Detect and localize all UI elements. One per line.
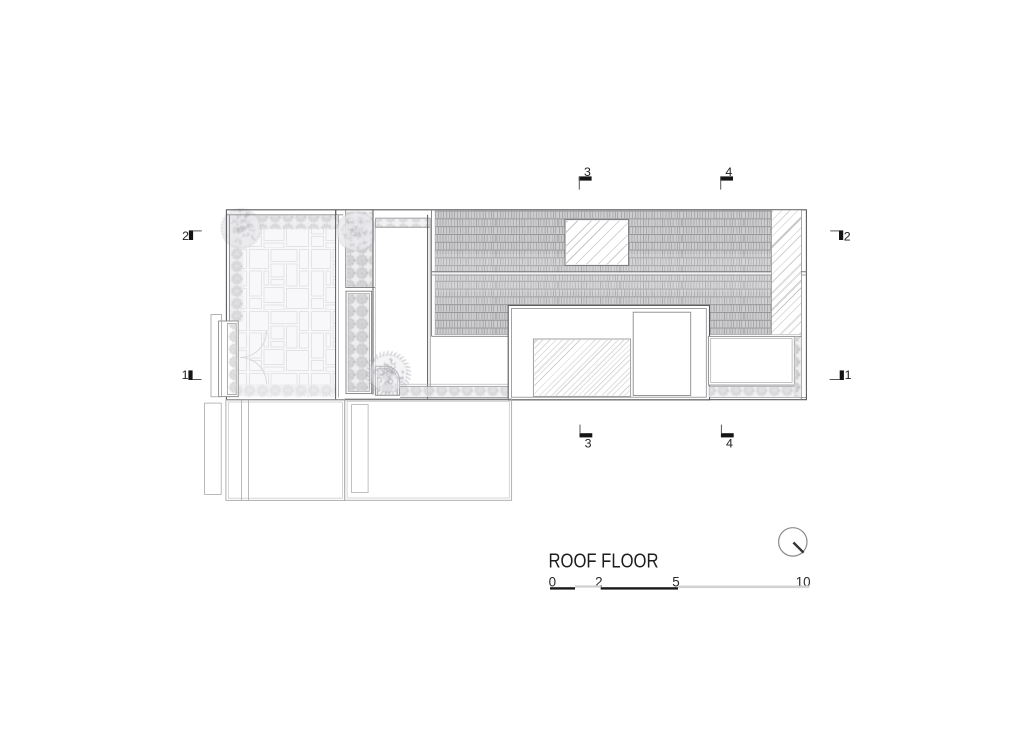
svg-text:4: 4 — [725, 165, 732, 179]
svg-text:2: 2 — [844, 229, 851, 243]
svg-text:3: 3 — [584, 165, 591, 179]
svg-text:ROOF FLOOR: ROOF FLOOR — [549, 550, 659, 573]
svg-text:0: 0 — [549, 574, 556, 589]
svg-text:4: 4 — [726, 436, 733, 450]
svg-text:1: 1 — [182, 368, 189, 382]
svg-text:3: 3 — [585, 436, 592, 450]
svg-text:1: 1 — [845, 368, 852, 382]
svg-text:2: 2 — [182, 229, 189, 243]
